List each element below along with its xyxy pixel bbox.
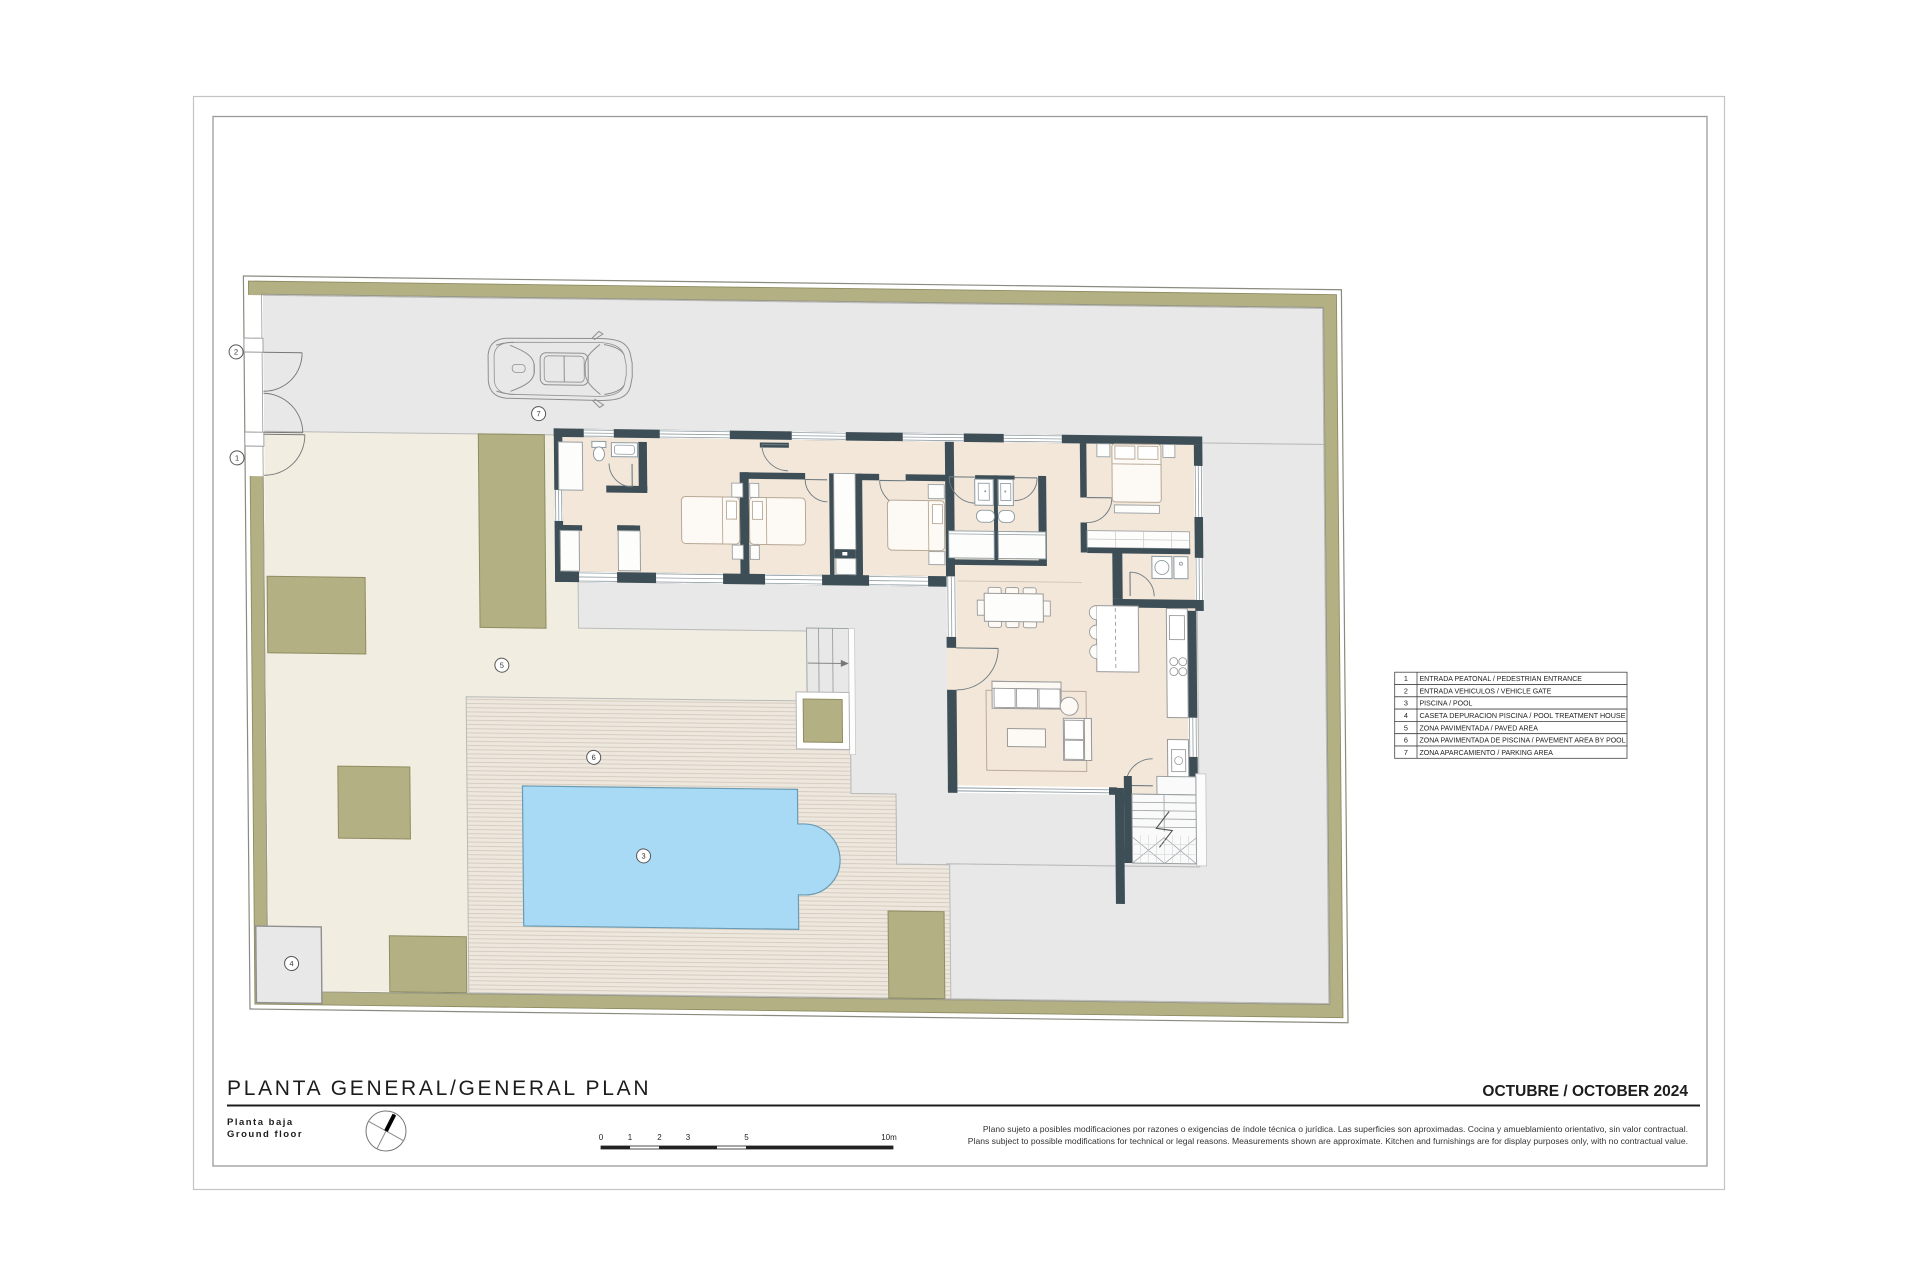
svg-text:ENTRADA PEATONAL / PEDESTRIAN: ENTRADA PEATONAL / PEDESTRIAN ENTRANCE (1420, 676, 1583, 683)
svg-text:ZONA PAVIMENTADA DE PISCINA /: ZONA PAVIMENTADA DE PISCINA / PAVEMENT A… (1420, 738, 1626, 745)
svg-text:ENTRADA VEHICULOS / VEHICLE GA: ENTRADA VEHICULOS / VEHICLE GATE (1420, 688, 1552, 695)
svg-text:5: 5 (744, 1133, 749, 1142)
svg-text:1: 1 (628, 1133, 633, 1142)
svg-text:6: 6 (1404, 736, 1408, 745)
svg-text:Ground floor: Ground floor (227, 1129, 303, 1140)
svg-text:3: 3 (1404, 699, 1408, 708)
svg-text:2: 2 (657, 1133, 662, 1142)
svg-text:Planta baja: Planta baja (227, 1117, 294, 1128)
svg-text:Plano sujeto a posibles modifi: Plano sujeto a posibles modificaciones p… (983, 1124, 1688, 1134)
svg-text:5: 5 (1404, 723, 1408, 732)
svg-text:5: 5 (500, 661, 504, 670)
svg-text:7: 7 (1404, 748, 1408, 757)
svg-text:1: 1 (1404, 674, 1408, 683)
svg-text:1: 1 (235, 453, 239, 462)
svg-text:PISCINA / POOL: PISCINA / POOL (1420, 701, 1473, 708)
svg-text:6: 6 (592, 753, 596, 762)
svg-text:Plans subject to possible modi: Plans subject to possible modifications … (968, 1136, 1688, 1146)
svg-text:4: 4 (289, 959, 293, 968)
svg-text:PLANTA GENERAL/GENERAL PLAN: PLANTA GENERAL/GENERAL PLAN (227, 1077, 651, 1100)
svg-text:10m: 10m (881, 1133, 897, 1142)
svg-text:ZONA PAVIMENTADA / PAVED AREA: ZONA PAVIMENTADA / PAVED AREA (1420, 725, 1539, 732)
svg-text:4: 4 (1404, 711, 1408, 720)
svg-text:3: 3 (641, 852, 645, 861)
svg-text:ZONA APARCAMIENTO / PARKING AR: ZONA APARCAMIENTO / PARKING AREA (1420, 750, 1554, 757)
svg-text:2: 2 (1404, 686, 1408, 695)
svg-text:2: 2 (234, 347, 238, 356)
svg-text:3: 3 (686, 1133, 691, 1142)
svg-text:0: 0 (599, 1133, 604, 1142)
svg-text:CASETA DEPURACION PISCINA / PO: CASETA DEPURACION PISCINA / POOL TREATME… (1420, 713, 1626, 720)
svg-text:7: 7 (536, 409, 540, 418)
svg-text:OCTUBRE / OCTOBER 2024: OCTUBRE / OCTOBER 2024 (1482, 1083, 1688, 1100)
